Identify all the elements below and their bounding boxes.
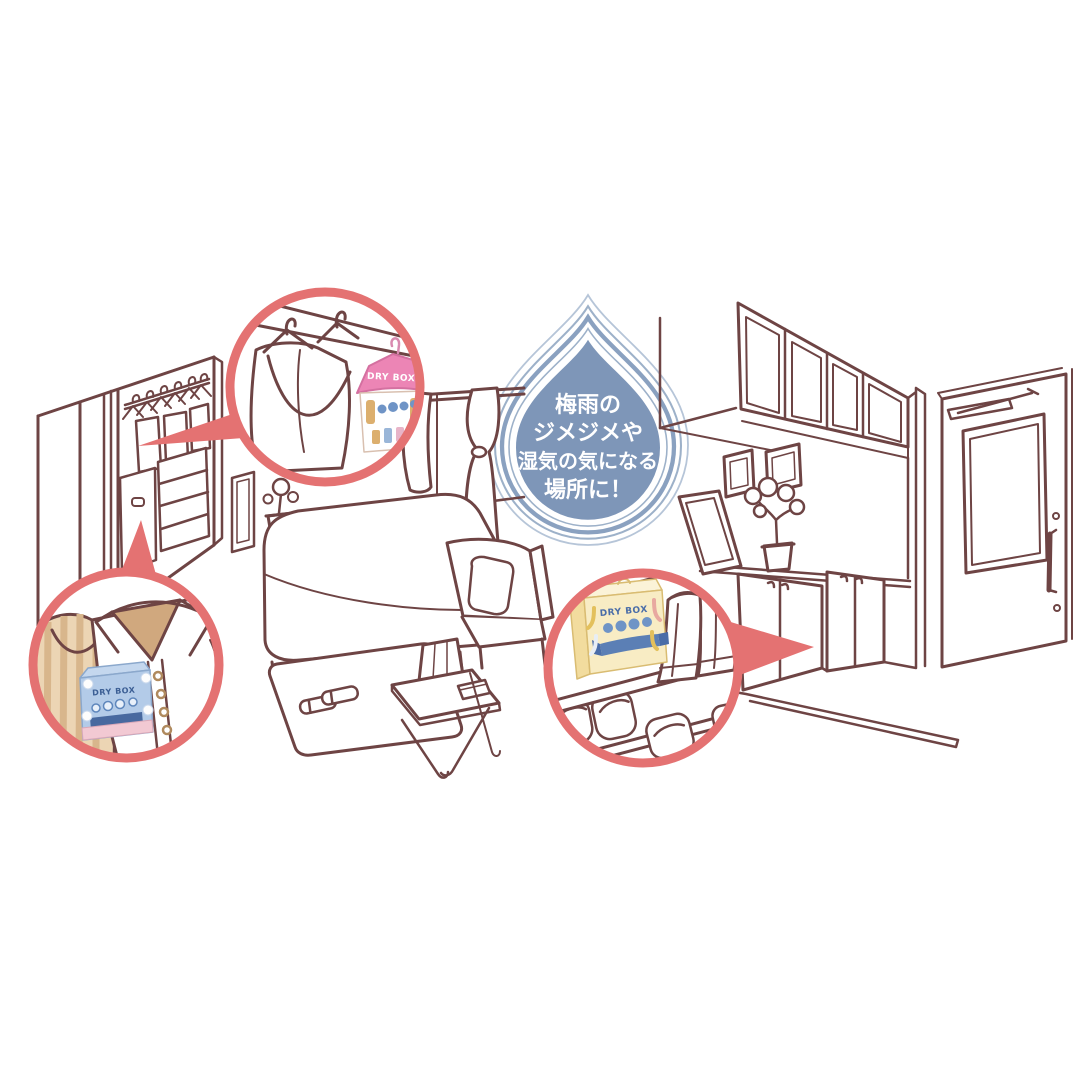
droplet-text-line4: 場所に！	[544, 478, 632, 503]
callout-drawer: DRY BOX	[29, 568, 232, 768]
product-drawer-pack: DRY BOX	[80, 662, 153, 740]
wall-frame-left	[232, 472, 254, 552]
wall-corner	[660, 318, 780, 452]
closet-drawers	[158, 448, 209, 551]
bed-pillow	[469, 557, 513, 614]
droplet-text-line2: ジメジメや	[533, 421, 643, 446]
counter-plant	[745, 478, 804, 571]
boots	[658, 587, 737, 682]
entry-door	[908, 368, 1072, 667]
droplet-text-line3: 湿気の気になる	[518, 449, 658, 473]
callout-shoes: DRY BOX	[544, 569, 751, 770]
entry-upper-cabinet	[738, 303, 908, 578]
promo-illustration: 梅雨の ジメジメや 湿気の気になる 場所に！	[0, 0, 1080, 1080]
scene-canvas: 梅雨の ジメジメや 湿気の気になる 場所に！	[0, 0, 1080, 1080]
droplet-badge-core: 梅雨の ジメジメや 湿気の気になる 場所に！	[516, 340, 660, 520]
genkan-step	[706, 687, 958, 747]
shoe-cabinet-doors	[738, 572, 916, 690]
droplet-text-line1: 梅雨の	[555, 392, 621, 418]
leaning-mirror	[679, 491, 741, 574]
